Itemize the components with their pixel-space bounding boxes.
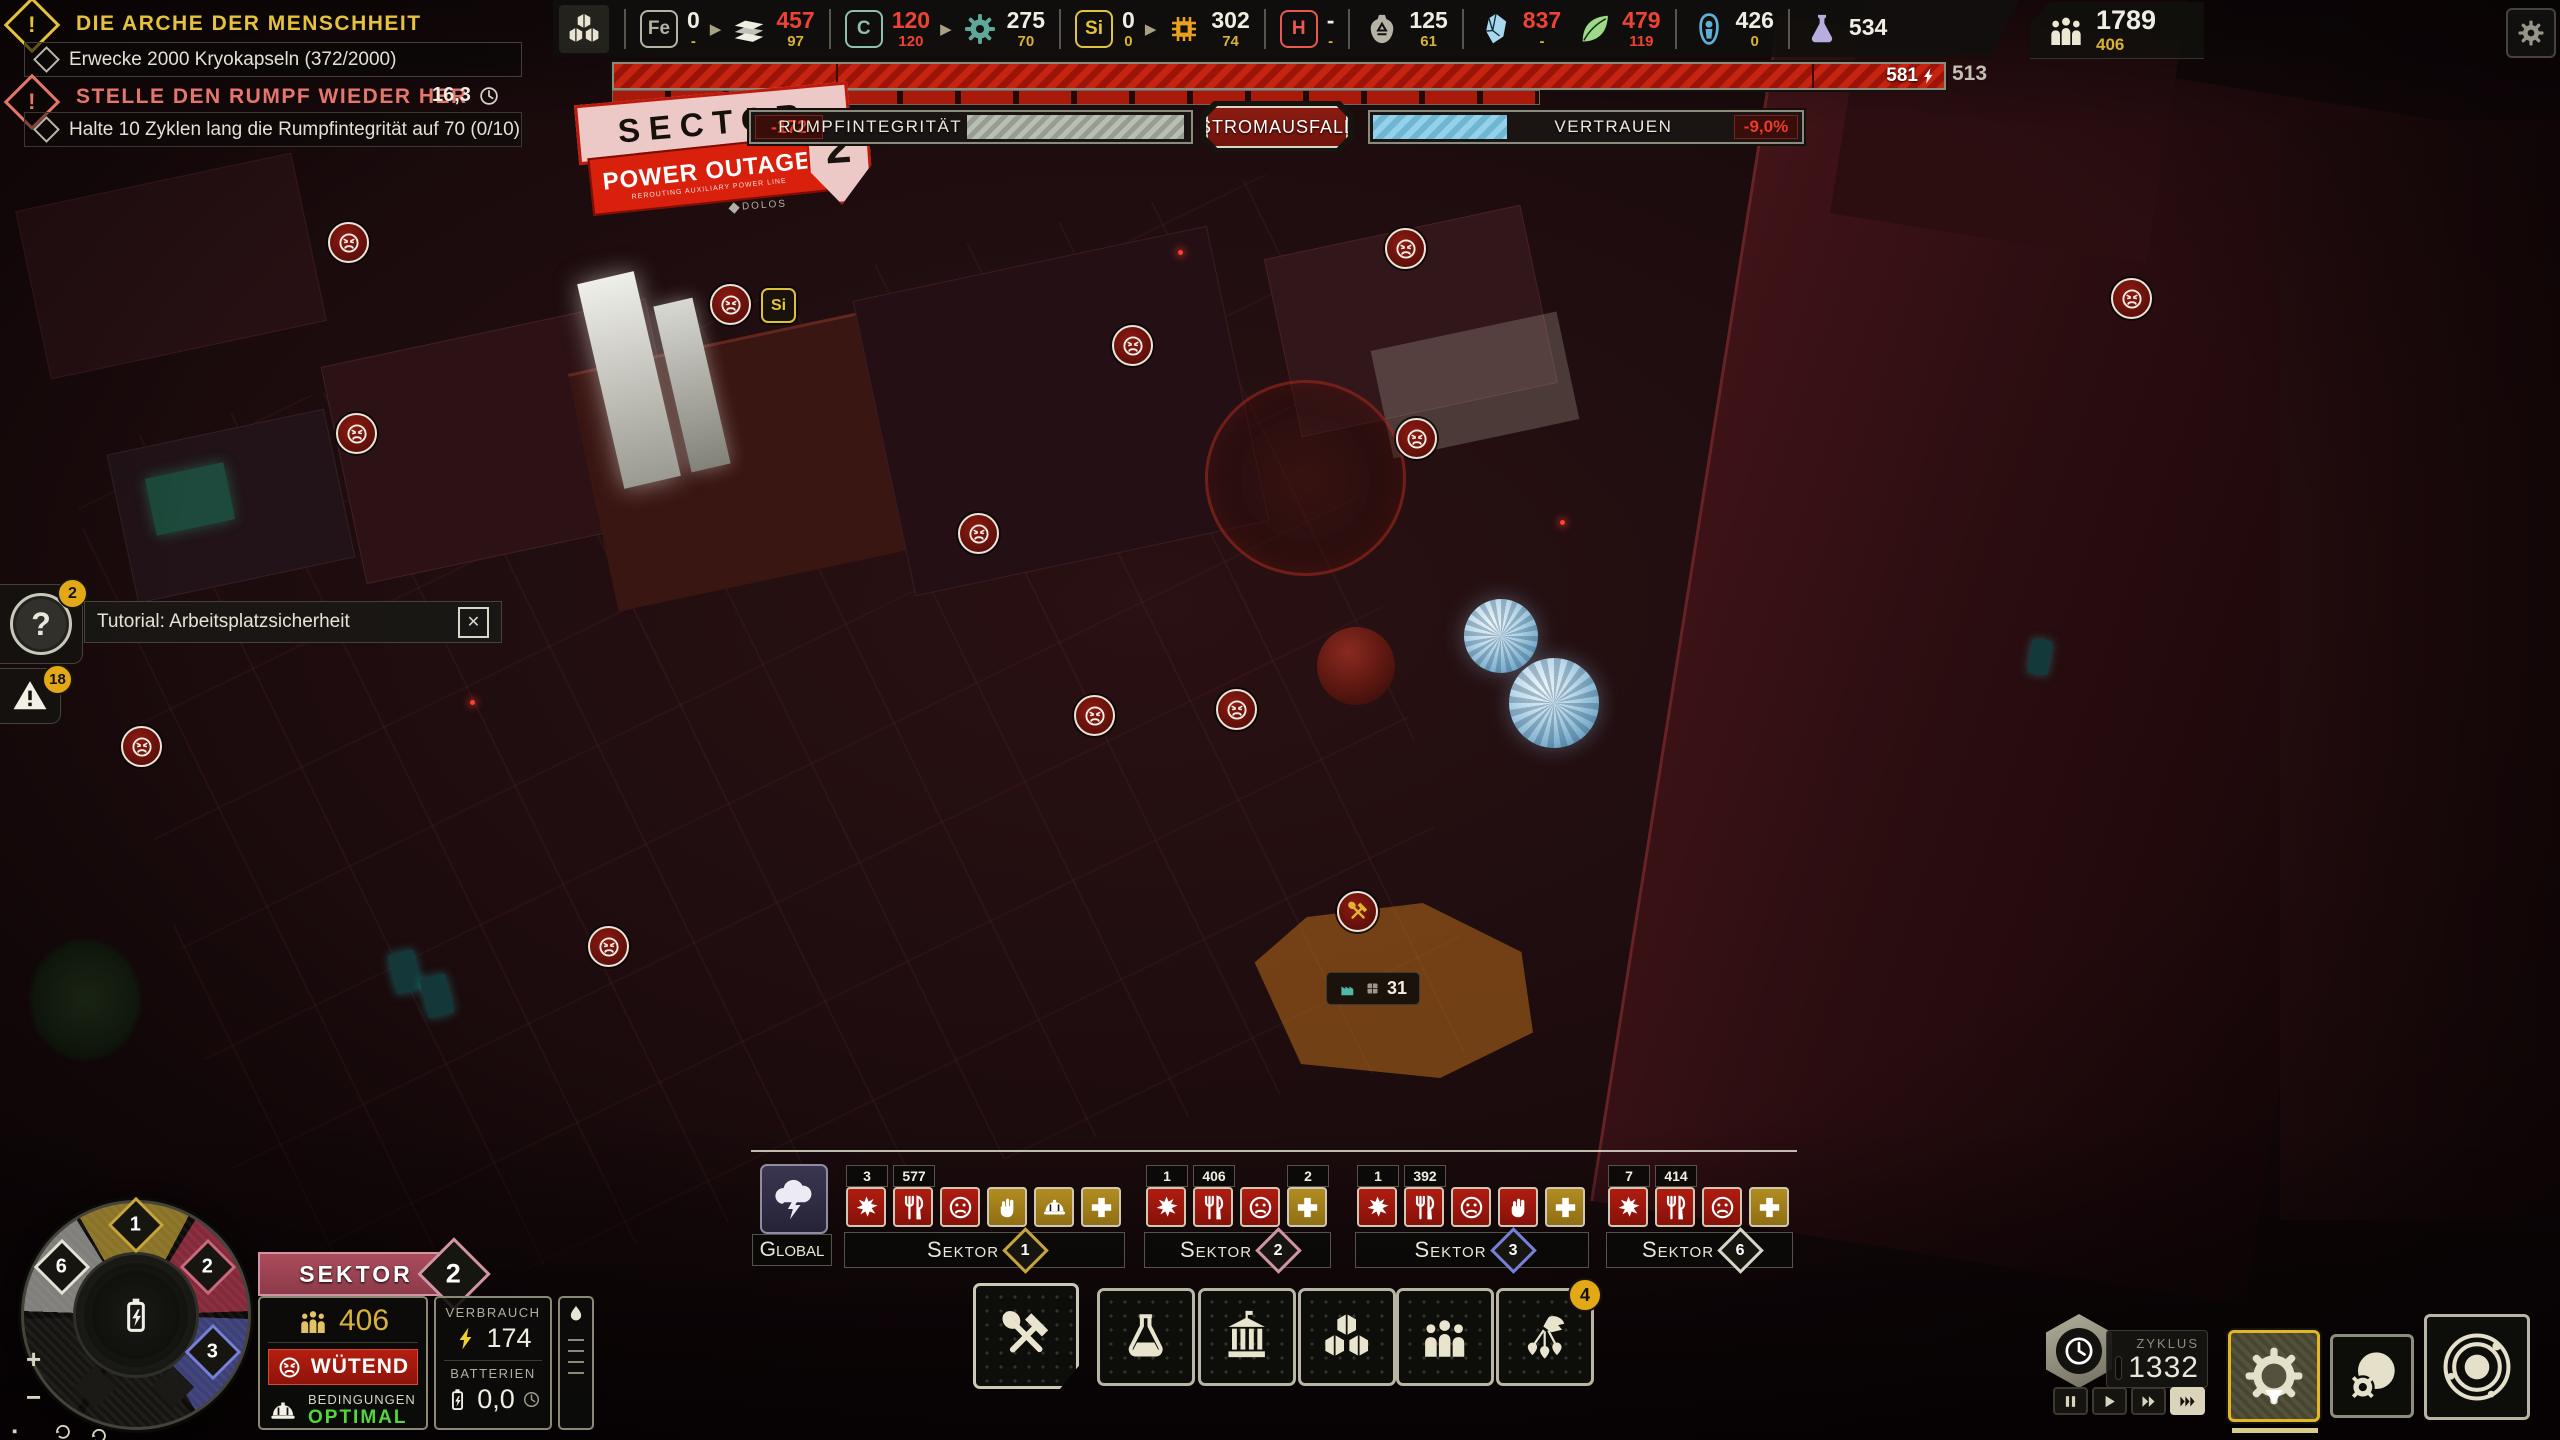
- fastest-speed-button[interactable]: [2170, 1387, 2205, 1415]
- sector-number-diamond: 2: [1255, 1227, 1302, 1274]
- construction-icon: [997, 1307, 1055, 1365]
- flow-arrow-icon: ▶: [940, 20, 952, 38]
- sad-face-icon: [1458, 1194, 1485, 1221]
- resource-polymer[interactable]: 30274: [1158, 9, 1257, 49]
- power-outage-alert[interactable]: STROMAUSFALL: [1200, 101, 1354, 153]
- silicon-deposit-badge[interactable]: Si: [761, 288, 796, 323]
- divider: [829, 9, 831, 49]
- divider: [1462, 9, 1464, 49]
- cross-icon: [1756, 1194, 1783, 1221]
- sector-outage-sign: SECTOR POWER OUTAGE REROUTING AUXILIARY …: [574, 81, 891, 217]
- divider: [1264, 9, 1266, 49]
- quest-timer: 16,3: [432, 84, 500, 107]
- resource-wasserstoff[interactable]: H--: [1272, 9, 1343, 49]
- cycle-stepper: [2115, 1356, 2122, 1380]
- map-plaza: [1205, 380, 1406, 576]
- cross-icon: [1552, 1194, 1579, 1221]
- sad-face-icon: [1709, 1194, 1736, 1221]
- rotate-right-icon: [88, 1424, 110, 1440]
- sector3-sad-face-tile[interactable]: [1451, 1187, 1491, 1227]
- angry-face-icon: [1083, 704, 1107, 728]
- sector3-food-alert-tile[interactable]: [1404, 1187, 1444, 1227]
- research-icon: [1119, 1310, 1172, 1363]
- sector3-burst-tile[interactable]: [1357, 1187, 1397, 1227]
- storm-icon: [771, 1176, 817, 1222]
- tile-count-badge: 1: [1357, 1165, 1399, 1187]
- angry-face-icon: [1394, 237, 1418, 261]
- sad-face-icon: [1247, 1194, 1274, 1221]
- kohlenstoff-icon: C: [845, 10, 883, 48]
- sector-1-label[interactable]: Sektor1: [844, 1232, 1125, 1268]
- quest-title[interactable]: DIE ARCHE DER MENSCHHEIT: [76, 12, 422, 36]
- angry-face-icon: [130, 735, 154, 759]
- building-icon: [1339, 979, 1358, 998]
- stockpile-icon: [1320, 1310, 1373, 1363]
- consumption-label: VERBRAUCH: [444, 1305, 542, 1320]
- sector6-sad-face-tile[interactable]: [1702, 1187, 1742, 1227]
- expedition-icon: [1518, 1310, 1571, 1363]
- angry-face-icon: [337, 231, 361, 255]
- resource-elektronik[interactable]: 27570: [954, 9, 1053, 49]
- sector6-cross-tile[interactable]: [1749, 1187, 1789, 1227]
- food-alert-icon: [1411, 1194, 1438, 1221]
- trust-bar[interactable]: VERTRAUEN -9,0%: [1368, 110, 1804, 144]
- objective-diamond-icon: [33, 116, 60, 143]
- quest-1-alert: !: [12, 5, 52, 45]
- flow-arrow-icon: ▶: [710, 20, 722, 38]
- consumption-value: 174: [486, 1323, 531, 1354]
- angry-face-icon: [1225, 698, 1249, 722]
- batteries-label: BATTERIEN: [444, 1366, 542, 1381]
- abfall-icon: [1364, 11, 1400, 47]
- sector2-burst-tile[interactable]: [1146, 1187, 1186, 1227]
- quest-objective[interactable]: Halte 10 Zyklen lang die Rumpfintegrität…: [24, 112, 522, 147]
- tile-count-badge: 1: [1146, 1165, 1188, 1187]
- battery-icon: [116, 1295, 156, 1335]
- fast-forward-icon: [2140, 1393, 2157, 1410]
- population-icon: [2046, 10, 2086, 50]
- storage-button[interactable]: [559, 5, 609, 53]
- resource-eisen[interactable]: Fe0-: [632, 9, 708, 49]
- angry-face-icon: [2120, 287, 2144, 311]
- sector-wheel-hub[interactable]: [73, 1252, 199, 1378]
- resource-wissenschaft[interactable]: 534: [1796, 11, 1895, 47]
- play-button[interactable]: [2092, 1387, 2127, 1415]
- resource-abfall[interactable]: 12561: [1356, 9, 1455, 49]
- unrest-marker[interactable]: [336, 413, 377, 454]
- global-label: Global: [752, 1234, 832, 1266]
- construction-marker[interactable]: [1337, 891, 1378, 932]
- resource-kohlenstoff[interactable]: C120120: [837, 9, 938, 49]
- clock-icon: [2062, 1334, 2096, 1368]
- tile-count-badge: 392: [1404, 1165, 1446, 1187]
- zoom-in-button[interactable]: +: [26, 1346, 41, 1372]
- kryokapseln-icon: [1691, 11, 1727, 47]
- pause-button[interactable]: [2053, 1387, 2088, 1415]
- trust-delta: -9,0%: [1734, 115, 1798, 139]
- civic-menu-button[interactable]: [1198, 1288, 1296, 1386]
- sector-population: 406: [339, 1304, 389, 1338]
- construction-icon: [1346, 900, 1370, 924]
- hull-integrity-bar[interactable]: -172 RUMPFINTEGRITÄT: [749, 110, 1193, 144]
- station-view-button[interactable]: [2228, 1330, 2320, 1422]
- wissenschaft-icon: [1804, 11, 1840, 47]
- sector1-cross-tile[interactable]: [1081, 1187, 1121, 1227]
- food-alert-icon: [900, 1194, 927, 1221]
- population-counter[interactable]: 1789 406: [2030, 2, 2204, 59]
- conditions-label: BEDINGUNGEN: [308, 1392, 416, 1407]
- sector-3-label[interactable]: Sektor3: [1355, 1232, 1589, 1268]
- city-map[interactable]: [0, 0, 2560, 1440]
- conditions-value: OPTIMAL: [308, 1407, 416, 1429]
- resource-silizium[interactable]: Si00: [1067, 9, 1143, 49]
- fist-icon: [1505, 1194, 1532, 1221]
- panel-separator: [751, 1150, 1797, 1152]
- objective-diamond-icon: [33, 46, 60, 73]
- map-glass-dome: [1509, 658, 1599, 748]
- close-icon[interactable]: ✕: [458, 607, 489, 638]
- nahrung-icon: [1577, 11, 1613, 47]
- research-menu-button[interactable]: [1097, 1288, 1195, 1386]
- angry-face-icon: [719, 293, 743, 317]
- divider: [624, 9, 626, 49]
- water-gauge[interactable]: [558, 1296, 594, 1430]
- elektronik-icon: [962, 11, 998, 47]
- power-capacity: 513: [1952, 62, 1987, 86]
- fist-icon: [994, 1194, 1021, 1221]
- tile-count-badge: 2: [1287, 1165, 1329, 1187]
- mood-status[interactable]: WÜTEND: [268, 1349, 418, 1385]
- polymer-icon: [1166, 11, 1202, 47]
- unrest-marker[interactable]: [2111, 278, 2152, 319]
- gear-icon: [2516, 18, 2546, 48]
- timer-clock-icon: [478, 85, 500, 107]
- helmet-icon: [268, 1396, 298, 1426]
- sector2-sad-face-tile[interactable]: [1240, 1187, 1280, 1227]
- eisen-icon: Fe: [640, 10, 678, 48]
- divider: [1348, 9, 1350, 49]
- game-screen: Si31 ! DIE ARCHE DER MENSCHHEIT Erwecke …: [0, 0, 2560, 1440]
- unrest-marker[interactable]: [1216, 689, 1257, 730]
- sector1-burst-tile[interactable]: [846, 1187, 886, 1227]
- bolt-icon: [1920, 67, 1938, 85]
- unrest-marker[interactable]: [1385, 228, 1426, 269]
- station-gear-icon: [2243, 1345, 2305, 1407]
- cross-icon: [1294, 1194, 1321, 1221]
- resource-nahrung[interactable]: 479119: [1569, 9, 1668, 49]
- rotate-left-button[interactable]: [52, 1420, 74, 1440]
- moon-gear-icon: [2343, 1347, 2401, 1405]
- map-red-dome: [1317, 627, 1395, 705]
- sector-population-panel: 406 WÜTEND BEDINGUNGEN OPTIMAL: [258, 1296, 428, 1430]
- map-edge-structure: [2280, 120, 2560, 1220]
- resource-legierung[interactable]: 45797: [723, 9, 822, 49]
- sector2-food-alert-tile[interactable]: [1193, 1187, 1233, 1227]
- map-mode-button[interactable]: ▪: [12, 1424, 17, 1439]
- divider: [1788, 9, 1790, 49]
- sector3-fist-tile[interactable]: [1498, 1187, 1538, 1227]
- history-clock-icon: [522, 1390, 541, 1409]
- food-alert-icon: [1200, 1194, 1227, 1221]
- sector6-food-alert-tile[interactable]: [1655, 1187, 1695, 1227]
- tile-count-badge: 3: [846, 1165, 888, 1187]
- burst-icon: [1364, 1194, 1391, 1221]
- resource-kryokapseln[interactable]: 4260: [1683, 9, 1782, 49]
- unrest-marker[interactable]: [1112, 325, 1153, 366]
- unrest-marker[interactable]: [588, 926, 629, 967]
- sector-2-label[interactable]: Sektor2: [1144, 1232, 1331, 1268]
- trust-label: VERTRAUEN: [1370, 112, 1672, 142]
- settings-button[interactable]: [2506, 8, 2556, 58]
- divider: [1675, 9, 1677, 49]
- population-menu-button[interactable]: [1396, 1288, 1494, 1386]
- unrest-marker[interactable]: [328, 222, 369, 263]
- rotate-right-button[interactable]: [88, 1424, 110, 1440]
- hull-fill: [967, 115, 1185, 139]
- population-icon: [297, 1305, 329, 1337]
- wasserstoff-icon: H: [1280, 10, 1318, 48]
- unrest-marker[interactable]: [1074, 695, 1115, 736]
- flow-arrow-icon: ▶: [1145, 20, 1157, 38]
- exterior-view-button[interactable]: [2330, 1334, 2414, 1418]
- cycle-counter: ZYKLUS 1332: [2106, 1330, 2208, 1388]
- global-alerts-button[interactable]: [760, 1164, 828, 1234]
- fast-forward-button[interactable]: [2131, 1387, 2166, 1415]
- silizium-icon: Si: [1075, 10, 1113, 48]
- fastest-icon: [2179, 1393, 2196, 1410]
- rotate-left-icon: [52, 1420, 74, 1440]
- map-tree: [30, 940, 140, 1060]
- tile-count-badge: 577: [893, 1165, 935, 1187]
- unrest-marker[interactable]: [1396, 418, 1437, 459]
- sector3-cross-tile[interactable]: [1545, 1187, 1585, 1227]
- map-building: [15, 153, 327, 380]
- sector1-helmet-tile[interactable]: [1034, 1187, 1074, 1227]
- stockpile-menu-button[interactable]: [1298, 1288, 1396, 1386]
- sector1-food-alert-tile[interactable]: [893, 1187, 933, 1227]
- quest-title[interactable]: STELLE DEN RUMPF WIEDER HER: [76, 85, 468, 109]
- sector6-burst-tile[interactable]: [1608, 1187, 1648, 1227]
- angry-face-icon: [277, 1355, 302, 1380]
- sector1-sad-face-tile[interactable]: [940, 1187, 980, 1227]
- map-glass-dome: [1464, 599, 1538, 673]
- resource-eis[interactable]: 837-: [1470, 9, 1569, 49]
- alerts-count-badge: 18: [42, 664, 73, 695]
- sector-number-diamond: 6: [1717, 1227, 1764, 1274]
- construction-menu-button[interactable]: [973, 1283, 1079, 1389]
- bolt-icon: [454, 1326, 479, 1351]
- sector-energy-panel: VERBRAUCH 174 BATTERIEN 0,0: [434, 1296, 552, 1430]
- angry-face-icon: [967, 522, 991, 546]
- hull-label: RUMPFINTEGRITÄT: [831, 112, 962, 142]
- divider: [1059, 9, 1061, 49]
- helmet-icon: [1041, 1194, 1068, 1221]
- unrest-marker[interactable]: [958, 513, 999, 554]
- unrest-marker[interactable]: [121, 726, 162, 767]
- droplet-icon: [566, 1304, 586, 1324]
- angry-face-icon: [345, 422, 369, 446]
- burst-icon: [1615, 1194, 1642, 1221]
- unrest-marker[interactable]: [710, 284, 751, 325]
- angry-face-icon: [1121, 334, 1145, 358]
- tutorial-notification[interactable]: Tutorial: Arbeitsplatzsicherheit ✕: [84, 601, 502, 643]
- tile-count-badge: 7: [1608, 1165, 1650, 1187]
- cross-icon: [1088, 1194, 1115, 1221]
- civic-icon: [1220, 1310, 1273, 1363]
- active-view-underline: [2232, 1428, 2318, 1433]
- tile-count-badge: 406: [1193, 1165, 1235, 1187]
- burst-icon: [1153, 1194, 1180, 1221]
- pause-icon: [2062, 1393, 2079, 1410]
- zoom-out-button[interactable]: −: [26, 1384, 41, 1410]
- batteries-value: 0,0: [477, 1384, 515, 1415]
- quest-objective[interactable]: Erwecke 2000 Kryokapseln (372/2000): [24, 42, 522, 77]
- eis-icon: [1478, 11, 1514, 47]
- sector-number-diamond: 1: [1002, 1227, 1049, 1274]
- sector-number-diamond: 3: [1490, 1227, 1537, 1274]
- sector1-fist-tile[interactable]: [987, 1187, 1027, 1227]
- angry-face-icon: [1405, 427, 1429, 451]
- orbit-icon: [2440, 1330, 2514, 1404]
- power-current: 581: [1886, 64, 1938, 88]
- food-alert-icon: [1662, 1194, 1689, 1221]
- population-icon: [1418, 1310, 1471, 1363]
- cubes-icon: [566, 11, 602, 47]
- burst-icon: [853, 1194, 880, 1221]
- expedition-count-badge: 4: [1568, 1278, 1602, 1312]
- cycle-value: 1332: [2128, 1351, 2199, 1385]
- system-map-button[interactable]: [2424, 1314, 2530, 1420]
- legierung-icon: [731, 11, 767, 47]
- sad-face-icon: [947, 1194, 974, 1221]
- angry-face-icon: [597, 935, 621, 959]
- play-icon: [2101, 1393, 2118, 1410]
- sector2-cross-tile[interactable]: [1287, 1187, 1327, 1227]
- sector-6-label[interactable]: Sektor6: [1606, 1232, 1793, 1268]
- zone-tooltip: 31: [1326, 972, 1420, 1005]
- tile-count-badge: 414: [1655, 1165, 1697, 1187]
- battery-icon: [445, 1387, 470, 1412]
- resource-bar: Fe0-▶45797C120120▶27570Si00▶30274H--1256…: [553, 0, 2019, 57]
- crate-icon: [1365, 981, 1380, 996]
